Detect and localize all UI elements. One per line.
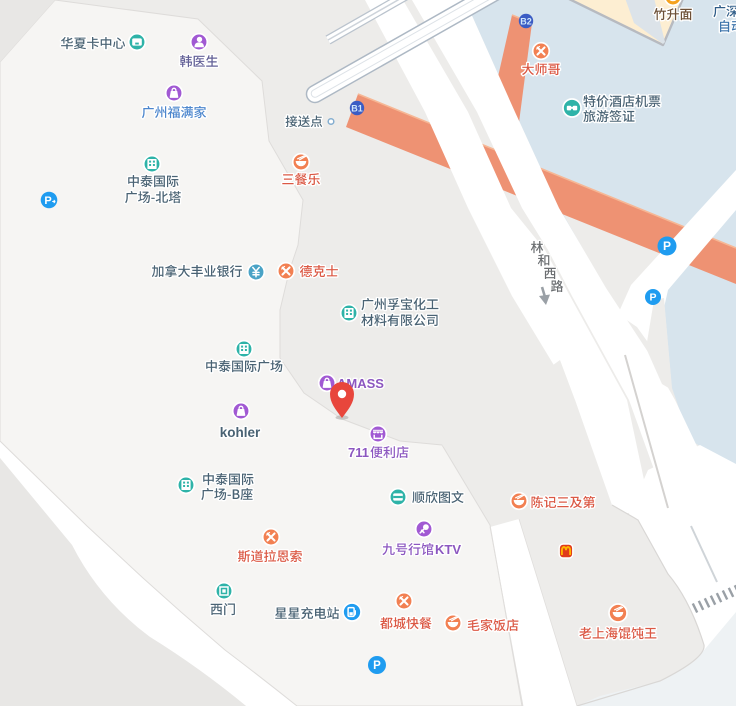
svg-text:P: P (663, 239, 671, 253)
svg-text:P: P (44, 195, 51, 207)
svg-text:B2: B2 (520, 17, 532, 27)
svg-text:KTV: KTV (435, 542, 461, 557)
svg-text:711: 711 (348, 445, 369, 460)
svg-text:P: P (373, 660, 381, 672)
svg-text:kohler: kohler (220, 425, 261, 440)
svg-text:P: P (649, 292, 656, 304)
svg-text:B1: B1 (351, 104, 363, 114)
